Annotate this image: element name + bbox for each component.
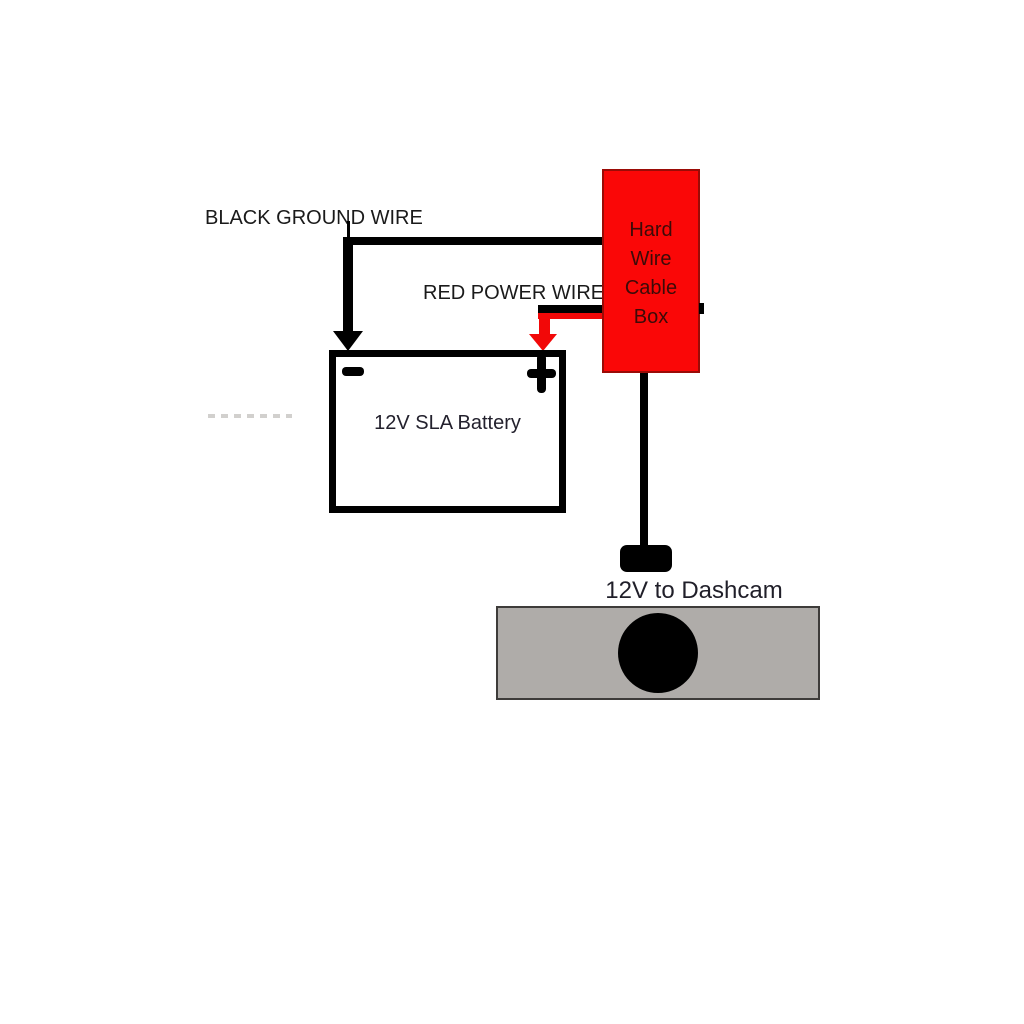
dashcam-lens-icon xyxy=(618,613,698,693)
dashcam-cable-vertical xyxy=(640,373,648,545)
erased-text-artifact xyxy=(208,414,292,418)
hardwire-box-right-stub xyxy=(699,303,704,314)
power-wire-down-arrow-icon xyxy=(529,334,557,351)
dashcam-plug-label: 12V to Dashcam xyxy=(594,577,794,604)
power-wire-horizontal-black xyxy=(538,305,602,313)
ground-wire-label: BLACK GROUND WIRE xyxy=(205,206,423,230)
power-wire-label: RED POWER WIRE xyxy=(423,281,604,305)
dc-plug-connector xyxy=(620,545,672,572)
positive-terminal-plus-icon-vbar xyxy=(537,354,546,393)
ground-wire-down-arrow-icon xyxy=(333,331,363,351)
wiring-diagram-canvas: BLACK GROUND WIRE RED POWER WIRE Hard Wi… xyxy=(0,0,1024,1024)
ground-label-leader-line xyxy=(347,221,350,238)
battery-label: 12V SLA Battery xyxy=(329,410,566,436)
ground-wire-vertical xyxy=(343,237,353,333)
negative-terminal-minus-icon xyxy=(342,367,364,376)
hardwire-cable-box-label: Hard Wire Cable Box xyxy=(625,210,677,332)
power-wire-vertical-red xyxy=(539,313,550,334)
hardwire-cable-box: Hard Wire Cable Box xyxy=(602,169,700,373)
ground-wire-horizontal xyxy=(343,237,603,245)
